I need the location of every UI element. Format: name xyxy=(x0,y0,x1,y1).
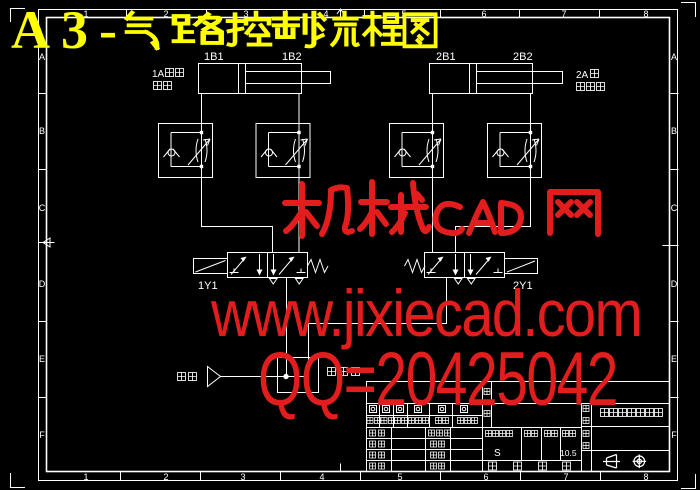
svg-text:1A: 1A xyxy=(152,69,165,80)
svg-text:2B2: 2B2 xyxy=(513,51,533,63)
svg-text:7: 7 xyxy=(561,9,566,19)
svg-text:A: A xyxy=(671,52,677,62)
svg-text:1B2: 1B2 xyxy=(282,51,302,63)
svg-text:8: 8 xyxy=(643,472,648,482)
svg-text:6: 6 xyxy=(483,472,488,482)
svg-text:2A: 2A xyxy=(576,70,589,81)
svg-text:D: D xyxy=(39,279,46,289)
svg-text:1B1: 1B1 xyxy=(204,51,224,63)
svg-text:2: 2 xyxy=(163,472,168,482)
svg-text:7: 7 xyxy=(563,472,568,482)
svg-text:S: S xyxy=(494,448,501,459)
svg-text:1: 1 xyxy=(83,472,88,482)
svg-text:6: 6 xyxy=(481,9,486,19)
svg-text:F: F xyxy=(39,430,45,440)
svg-text:10.5: 10.5 xyxy=(560,448,577,458)
svg-text:A3-: A3- xyxy=(11,0,128,60)
svg-text:F: F xyxy=(671,430,677,440)
svg-text:2: 2 xyxy=(163,9,168,19)
svg-text:E: E xyxy=(39,354,45,364)
svg-text:D: D xyxy=(671,279,678,289)
svg-text:3: 3 xyxy=(240,472,245,482)
svg-text:E: E xyxy=(671,354,677,364)
svg-text:2B1: 2B1 xyxy=(436,51,456,63)
svg-text:4: 4 xyxy=(319,472,324,482)
svg-text:8: 8 xyxy=(643,9,648,19)
svg-text:B: B xyxy=(671,126,677,136)
svg-text:QQ=20425042: QQ=20425042 xyxy=(258,337,617,422)
svg-text:5: 5 xyxy=(397,472,402,482)
svg-text:C: C xyxy=(39,203,46,213)
svg-text:B: B xyxy=(39,126,45,136)
svg-text:C: C xyxy=(671,203,678,213)
